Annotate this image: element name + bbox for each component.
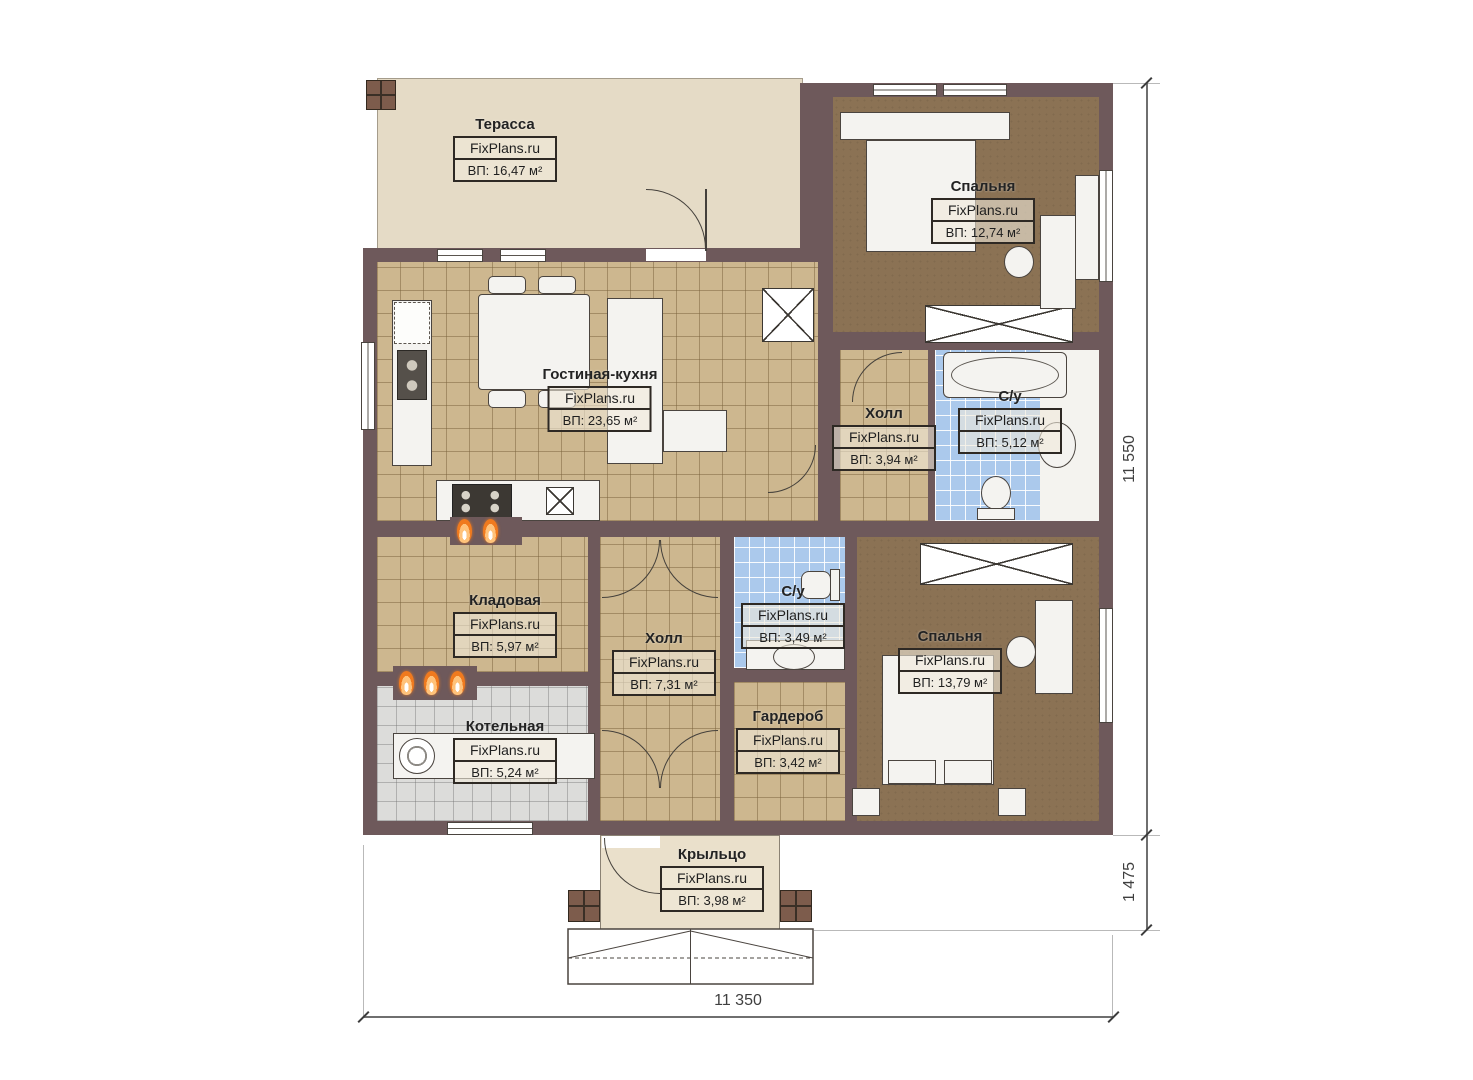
sink-box-icon xyxy=(546,487,574,515)
porch-post-right-icon xyxy=(780,890,812,922)
wall-hall2-east xyxy=(720,537,734,835)
radiator-flame-icon xyxy=(399,671,414,695)
room-area: ВП: 13,79 м² xyxy=(900,672,1000,692)
watermark: FixPlans.ru xyxy=(455,138,555,160)
dim-extension xyxy=(1113,835,1160,836)
window-bedroom2-east xyxy=(1099,608,1113,723)
nightstand xyxy=(998,788,1026,816)
dim-extension xyxy=(1112,935,1113,1017)
watermark: FixPlans.ru xyxy=(900,650,1000,672)
desk-chair xyxy=(1006,636,1036,668)
window-bedroom1-north xyxy=(943,84,1007,96)
dim-value-bottom-width: 11 350 xyxy=(688,992,788,1010)
room-area: ВП: 12,74 м² xyxy=(933,222,1033,242)
room-info-box: FixPlans.ru ВП: 16,47 м² xyxy=(453,136,557,182)
room-area: ВП: 3,49 м² xyxy=(743,627,843,647)
bed-headboard xyxy=(840,112,1010,140)
room-info-box: FixPlans.ru ВП: 5,12 м² xyxy=(958,408,1062,454)
room-label-wardrobe: Гардероб FixPlans.ru ВП: 3,42 м² xyxy=(736,708,840,774)
room-label-storage: Кладовая FixPlans.ru ВП: 5,97 м² xyxy=(453,592,557,658)
porch-post-left-icon xyxy=(568,890,600,922)
window-living-north xyxy=(500,249,546,262)
stove-icon xyxy=(452,484,512,518)
room-name: Спальня xyxy=(898,628,1002,645)
dim-extension xyxy=(814,930,1160,931)
dining-chair xyxy=(538,276,576,294)
room-area: ВП: 23,65 м² xyxy=(550,410,650,430)
room-name: Гардероб xyxy=(736,708,840,725)
washing-machine-icon xyxy=(399,738,435,774)
room-name: Спальня xyxy=(931,178,1035,195)
toilet-tank-icon xyxy=(977,508,1015,520)
watermark: FixPlans.ru xyxy=(738,730,838,752)
radiator-flame-icon xyxy=(450,671,465,695)
room-info-box: FixPlans.ru ВП: 12,74 м² xyxy=(931,198,1035,244)
room-label-bedroom1: Спальня FixPlans.ru ВП: 12,74 м² xyxy=(931,178,1035,244)
window-sill xyxy=(1075,175,1099,280)
watermark: FixPlans.ru xyxy=(614,652,714,674)
room-info-box: FixPlans.ru ВП: 5,97 м² xyxy=(453,612,557,658)
watermark: FixPlans.ru xyxy=(933,200,1033,222)
room-area: ВП: 3,94 м² xyxy=(834,449,934,469)
room-label-terrace: Терасса FixPlans.ru ВП: 16,47 м² xyxy=(453,116,557,182)
room-info-box: FixPlans.ru ВП: 5,24 м² xyxy=(453,738,557,784)
dim-value-right-total: 11 550 xyxy=(1121,419,1139,499)
bed-pillow xyxy=(944,760,992,784)
dim-line-bottom xyxy=(363,1016,1113,1018)
room-area: ВП: 3,42 м² xyxy=(738,752,838,772)
desk xyxy=(1035,600,1073,694)
room-info-box: FixPlans.ru ВП: 3,49 м² xyxy=(741,603,845,649)
room-name: Холл xyxy=(832,405,936,422)
watermark: FixPlans.ru xyxy=(743,605,843,627)
terrace-door-opening xyxy=(646,249,706,261)
room-name: Котельная xyxy=(453,718,557,735)
watermark: FixPlans.ru xyxy=(455,614,555,636)
room-area: ВП: 5,97 м² xyxy=(455,636,555,656)
watermark: FixPlans.ru xyxy=(960,410,1060,432)
room-name: Кладовая xyxy=(453,592,557,609)
window-bedroom1-east xyxy=(1099,170,1113,282)
nightstand xyxy=(852,788,880,816)
desk-chair xyxy=(1004,246,1034,278)
desk xyxy=(1040,215,1076,309)
room-name: С/у xyxy=(741,583,845,600)
room-name: Крыльцо xyxy=(660,846,764,863)
stairs xyxy=(567,928,814,985)
window-living-west xyxy=(361,342,375,430)
watermark: FixPlans.ru xyxy=(662,868,762,890)
room-label-hall1: Холл FixPlans.ru ВП: 3,94 м² xyxy=(832,405,936,471)
bed-pillow xyxy=(888,760,936,784)
dining-chair xyxy=(488,390,526,408)
window-bedroom1-north xyxy=(873,84,937,96)
ventilation-shaft-icon xyxy=(762,288,814,342)
room-name: Гостиная-кухня xyxy=(543,366,658,383)
radiator-flame-icon xyxy=(424,671,439,695)
radiator-flame-icon xyxy=(483,519,498,543)
watermark: FixPlans.ru xyxy=(834,427,934,449)
room-label-porch: Крыльцо FixPlans.ru ВП: 3,98 м² xyxy=(660,846,764,912)
dim-line-right xyxy=(1146,83,1148,930)
dim-extension xyxy=(363,845,364,1017)
room-label-bedroom2: Спальня FixPlans.ru ВП: 13,79 м² xyxy=(898,628,1002,694)
toilet-bowl-icon xyxy=(981,476,1011,510)
watermark: FixPlans.ru xyxy=(550,388,650,410)
room-info-box: FixPlans.ru ВП: 3,94 м² xyxy=(832,425,936,471)
room-area: ВП: 16,47 м² xyxy=(455,160,555,180)
window-living-north xyxy=(437,249,483,262)
room-area: ВП: 5,24 м² xyxy=(455,762,555,782)
room-area: ВП: 5,12 м² xyxy=(960,432,1060,452)
watermark: FixPlans.ru xyxy=(455,740,555,762)
wall-bath2-wardrobe xyxy=(734,668,845,682)
dining-chair xyxy=(488,276,526,294)
window-boiler-south xyxy=(447,822,533,835)
room-name: Холл xyxy=(612,630,716,647)
radiator-flame-icon xyxy=(457,519,472,543)
wardrobe-unit-icon xyxy=(925,305,1073,343)
terrace-post-icon xyxy=(366,80,396,110)
room-label-living-kitchen: Гостиная-кухня FixPlans.ru ВП: 23,65 м² xyxy=(543,366,658,432)
room-label-bath1: С/у FixPlans.ru ВП: 5,12 м² xyxy=(958,388,1062,454)
side-table xyxy=(663,410,727,452)
dim-extension xyxy=(1113,83,1160,84)
door-leaf-terrace xyxy=(705,189,707,251)
room-area: ВП: 3,98 м² xyxy=(662,890,762,910)
room-area: ВП: 7,31 м² xyxy=(614,674,714,694)
room-name: Терасса xyxy=(453,116,557,133)
room-info-box: FixPlans.ru ВП: 3,98 м² xyxy=(660,866,764,912)
wardrobe-unit-icon xyxy=(920,543,1073,585)
room-info-box: FixPlans.ru ВП: 7,31 м² xyxy=(612,650,716,696)
room-label-boiler: Котельная FixPlans.ru ВП: 5,24 м² xyxy=(453,718,557,784)
kitchen-sink-icon xyxy=(397,350,427,400)
floor-plan-canvas: Терасса FixPlans.ru ВП: 16,47 м² Спальня… xyxy=(0,0,1473,1080)
room-info-box: FixPlans.ru ВП: 13,79 м² xyxy=(898,648,1002,694)
room-label-bath2: С/у FixPlans.ru ВП: 3,49 м² xyxy=(741,583,845,649)
room-info-box: FixPlans.ru ВП: 3,42 м² xyxy=(736,728,840,774)
room-info-box: FixPlans.ru ВП: 23,65 м² xyxy=(548,386,652,432)
dim-value-right-porch: 1 475 xyxy=(1121,842,1139,922)
wall-storage-hall2 xyxy=(588,537,600,835)
room-label-hall2: Холл FixPlans.ru ВП: 7,31 м² xyxy=(612,630,716,696)
room-name: С/у xyxy=(958,388,1062,405)
fridge-icon xyxy=(394,302,430,344)
terrace-deck xyxy=(377,78,803,250)
